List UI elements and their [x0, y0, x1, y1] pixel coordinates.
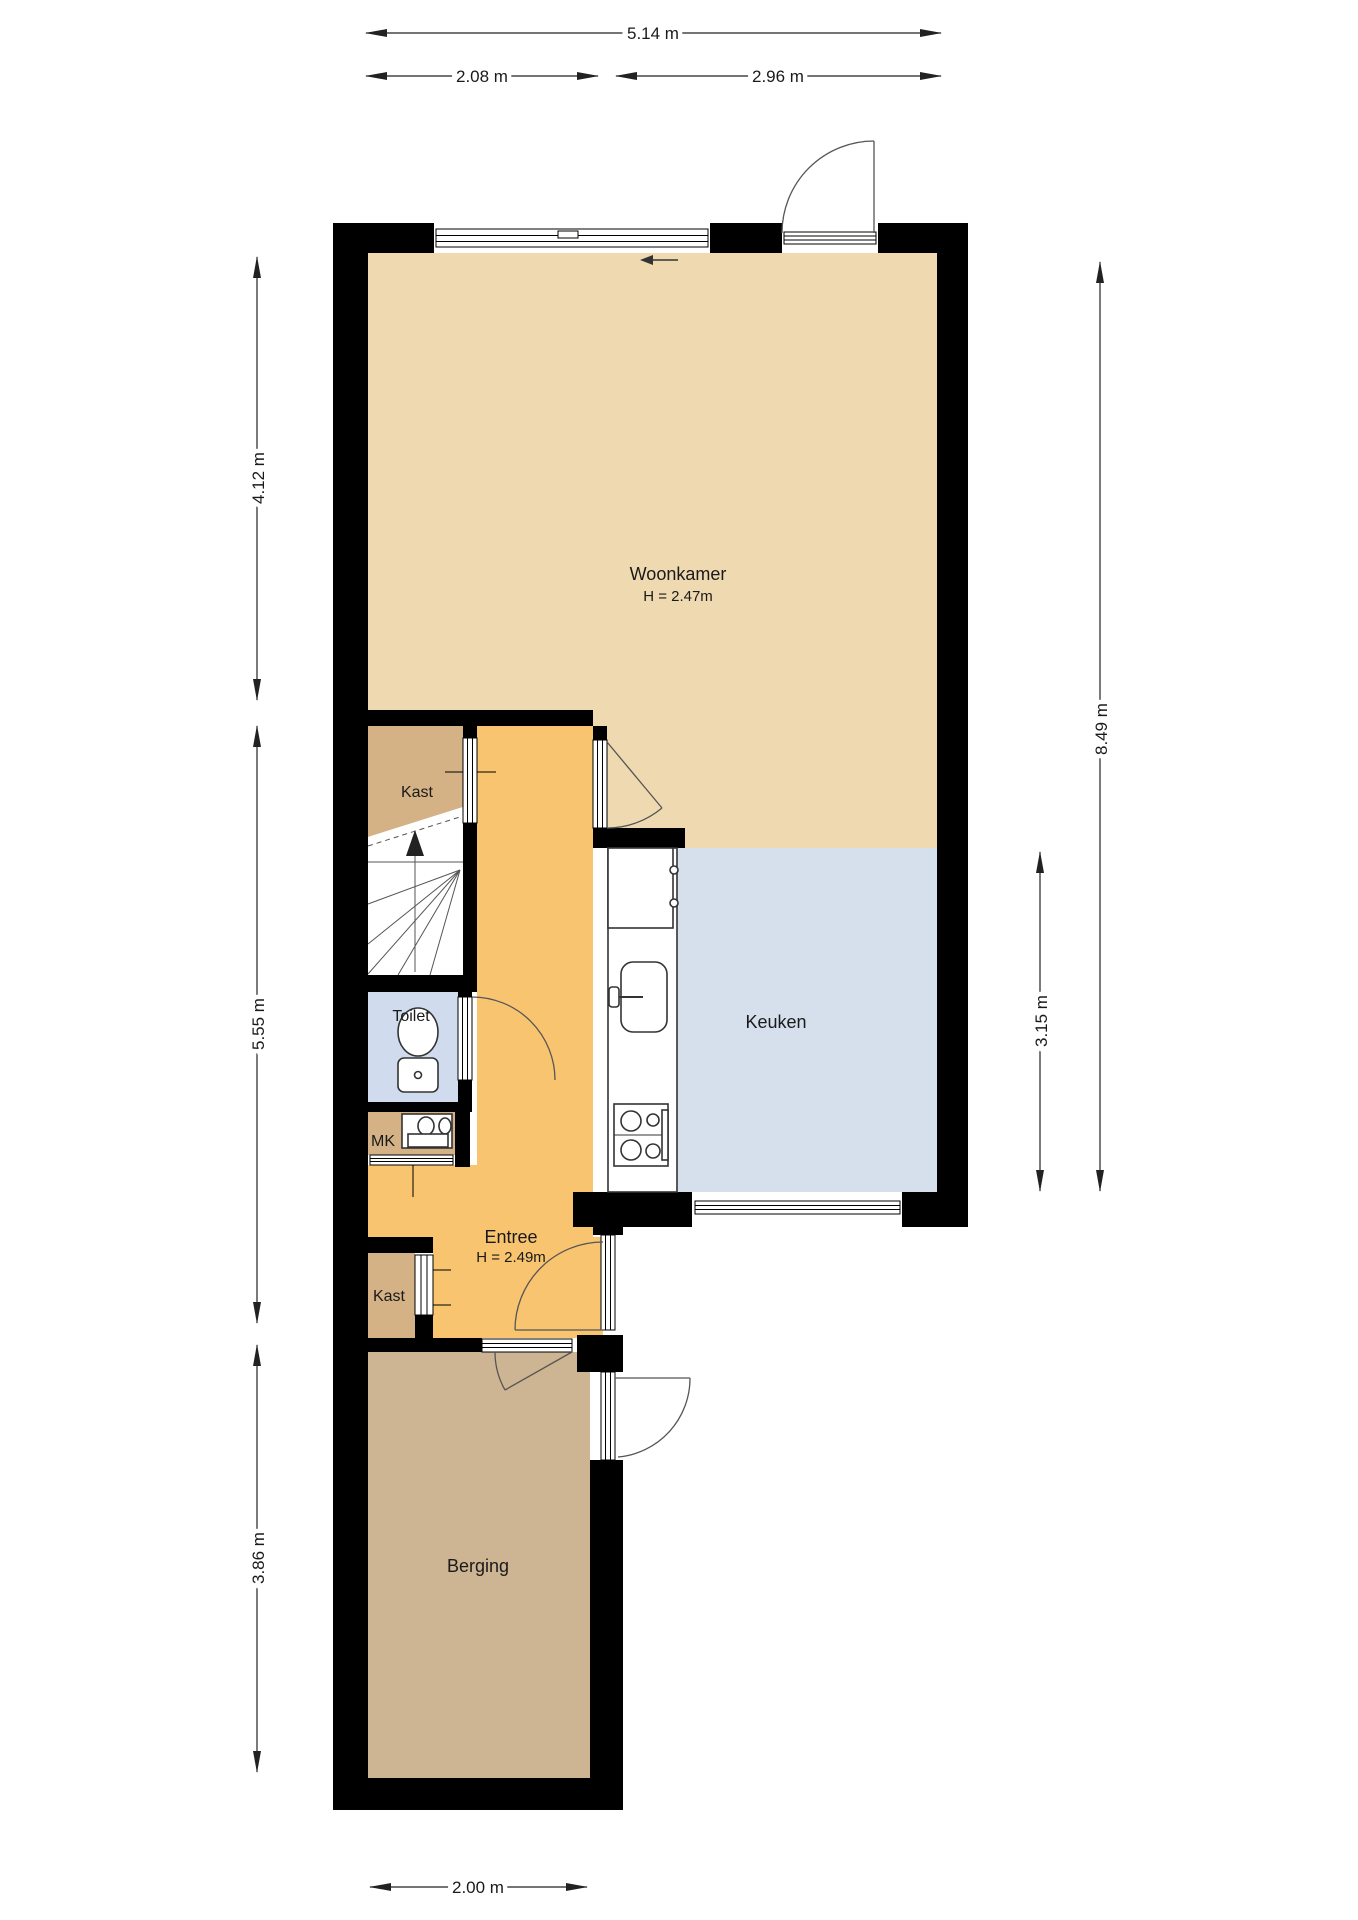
door-swing-front-top	[782, 141, 874, 233]
meter-cupboard-icon	[402, 1114, 452, 1148]
label-toilet: Toilet	[392, 1008, 430, 1025]
door-sill-front-top	[784, 232, 876, 244]
label-berging: Berging	[447, 1556, 509, 1576]
door-woonkamer-entree	[593, 740, 607, 828]
dim-top-total: 5.14 m	[627, 24, 679, 43]
kitchen-counter	[608, 848, 678, 1192]
window-keuken	[695, 1201, 900, 1214]
door-front-entree	[601, 1235, 615, 1330]
kitchen-cabinet	[608, 848, 673, 928]
room-entree-lower-left	[368, 1165, 477, 1237]
door-swing-berging-exterior	[615, 1378, 690, 1457]
label-kast-lower: Kast	[373, 1288, 406, 1305]
label-kast-upper: Kast	[401, 784, 434, 801]
window-top-living	[436, 229, 708, 247]
label-mk: MK	[371, 1133, 395, 1150]
room-keuken	[677, 848, 937, 1192]
dim-bottom: 2.00 m	[452, 1878, 504, 1897]
stove-icon	[614, 1104, 668, 1166]
dim-right-kitchen: 3.15 m	[1032, 995, 1051, 1047]
label-entree: Entree	[484, 1227, 537, 1247]
door-toilet	[458, 997, 472, 1080]
dim-top-left: 2.08 m	[456, 67, 508, 86]
label-entree-height: H = 2.49m	[476, 1249, 546, 1266]
dim-left-middle: 5.55 m	[249, 998, 268, 1050]
dim-left-top: 4.12 m	[249, 452, 268, 504]
label-keuken: Keuken	[745, 1012, 806, 1032]
dim-left-bottom: 3.86 m	[249, 1532, 268, 1584]
window-vent	[558, 231, 578, 238]
door-sill-berging	[482, 1339, 572, 1352]
floorplan-page: Woonkamer H = 2.47m Keuken Entree H = 2.…	[0, 0, 1358, 1920]
room-entree-corridor	[477, 726, 593, 1237]
label-woonkamer-height: H = 2.47m	[643, 588, 713, 605]
dim-right-total: 8.49 m	[1092, 703, 1111, 755]
floorplan-drawing: Woonkamer H = 2.47m Keuken Entree H = 2.…	[0, 0, 1358, 1920]
door-berging-exterior	[601, 1372, 615, 1460]
label-woonkamer: Woonkamer	[630, 564, 727, 584]
dim-top-right: 2.96 m	[752, 67, 804, 86]
